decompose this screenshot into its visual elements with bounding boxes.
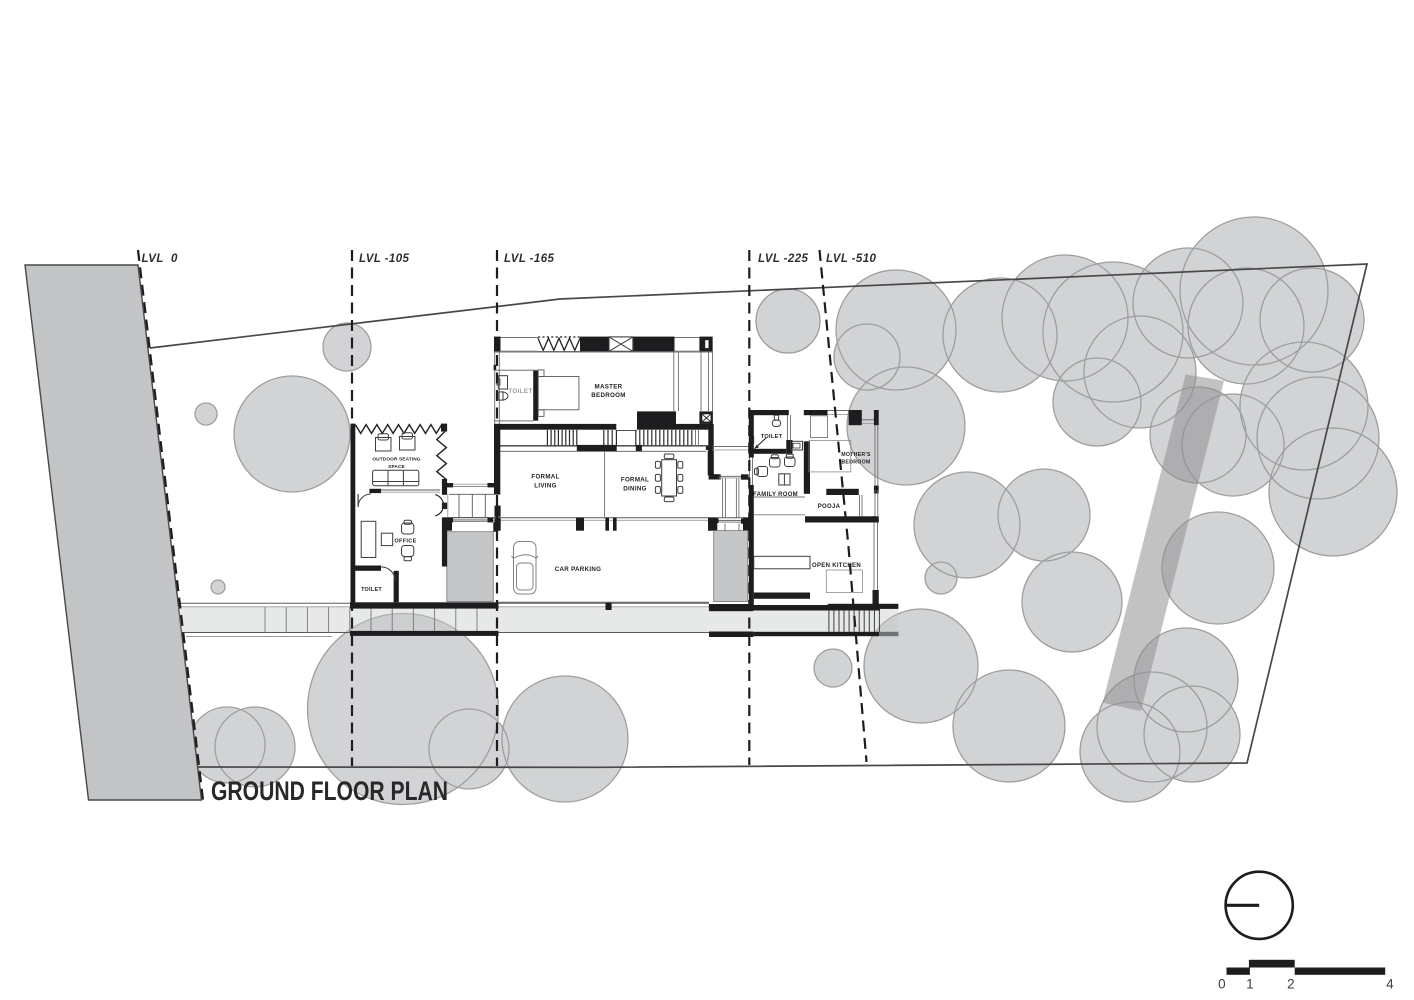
svg-text:LIVING: LIVING (534, 482, 556, 489)
svg-text:GROUND FLOOR PLAN: GROUND FLOOR PLAN (211, 776, 448, 806)
svg-text:2: 2 (1287, 977, 1295, 992)
svg-text:OPEN KITCHEN: OPEN KITCHEN (812, 563, 861, 569)
svg-text:OUTDOOR SEATING: OUTDOOR SEATING (372, 457, 420, 463)
svg-text:0: 0 (1218, 977, 1226, 992)
svg-text:4: 4 (1386, 977, 1394, 992)
svg-text:LVL -510: LVL -510 (826, 253, 876, 265)
svg-text:DINING: DINING (623, 485, 646, 492)
svg-text:BEDROOM: BEDROOM (841, 460, 870, 466)
svg-text:LVL -165: LVL -165 (504, 253, 554, 265)
svg-text:TOILET: TOILET (361, 587, 382, 593)
svg-text:1: 1 (1246, 977, 1254, 992)
svg-text:POOJA: POOJA (818, 504, 841, 510)
svg-text:TOILET: TOILET (508, 388, 532, 395)
svg-text:LVL -105: LVL -105 (359, 253, 409, 265)
svg-text:BEDROOM: BEDROOM (591, 392, 625, 399)
svg-text:LVL -225: LVL -225 (758, 253, 808, 265)
svg-text:FORMAL: FORMAL (621, 477, 649, 484)
svg-text:OFFICE: OFFICE (394, 538, 416, 544)
svg-text:FORMAL: FORMAL (531, 474, 559, 481)
svg-text:SPACE: SPACE (388, 464, 405, 470)
svg-text:MASTER: MASTER (595, 384, 623, 391)
svg-text:CAR PARKING: CAR PARKING (555, 566, 602, 573)
svg-text:LVL 0: LVL 0 (142, 253, 178, 265)
svg-text:MOTHER'S: MOTHER'S (841, 452, 871, 458)
